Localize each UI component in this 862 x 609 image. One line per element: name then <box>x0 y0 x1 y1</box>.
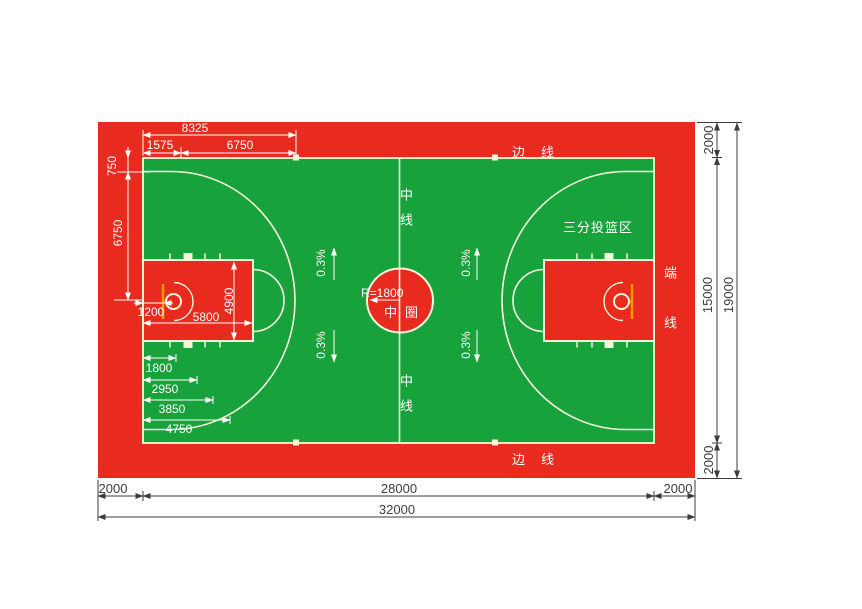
dim-key-width: 4900 <box>222 271 236 331</box>
dim-court-length: 28000 <box>369 481 429 496</box>
slope-label-left-bottom: 0.3% <box>314 315 328 375</box>
dim-right-margin-top: 2000 <box>702 110 716 170</box>
three-point-zone-label: 三分投篮区 <box>563 217 633 236</box>
endline-label: 端线 <box>660 266 679 366</box>
dim-basket-offset: 1575 <box>130 138 190 152</box>
dim-half-width: 6750 <box>111 203 125 263</box>
basketball-court-plan: 8325 1575 6750 750 6750 1200 5800 4900 1… <box>0 0 862 609</box>
sideline-label-bottom: 边线 <box>512 449 570 468</box>
slope-label-left-top: 0.3% <box>314 233 328 293</box>
dim-chain-2950: 2950 <box>135 382 195 396</box>
dim-court-width: 15000 <box>701 265 715 325</box>
key-left <box>143 260 253 341</box>
dim-right-margin-bottom: 2000 <box>702 430 716 490</box>
dim-top-total: 8325 <box>165 121 225 135</box>
dim-backboard-endline: 1200 <box>128 305 174 319</box>
slope-label-right-bottom: 0.3% <box>459 315 473 375</box>
center-line-label-bottom: 中线 <box>396 374 415 424</box>
dim-total-length: 32000 <box>367 502 427 517</box>
center-circle-label: 中圈 <box>384 302 426 321</box>
dim-bottom-margin-left: 2000 <box>83 481 143 496</box>
dim-chain-4750: 4750 <box>149 422 209 436</box>
dim-3pt-margin: 750 <box>105 136 119 196</box>
dim-arc-radius-top: 6750 <box>210 138 270 152</box>
slope-label-right-top: 0.3% <box>459 233 473 293</box>
center-line-label-top: 中线 <box>396 188 415 238</box>
dim-center-radius: R=1800 <box>361 286 403 300</box>
key-right <box>544 260 654 341</box>
dim-chain-1800: 1800 <box>129 361 189 375</box>
dim-total-width: 19000 <box>722 265 736 325</box>
sideline-label-top: 边线 <box>512 142 570 161</box>
dim-bottom-margin-right: 2000 <box>648 481 708 496</box>
dim-chain-3850: 3850 <box>142 402 202 416</box>
